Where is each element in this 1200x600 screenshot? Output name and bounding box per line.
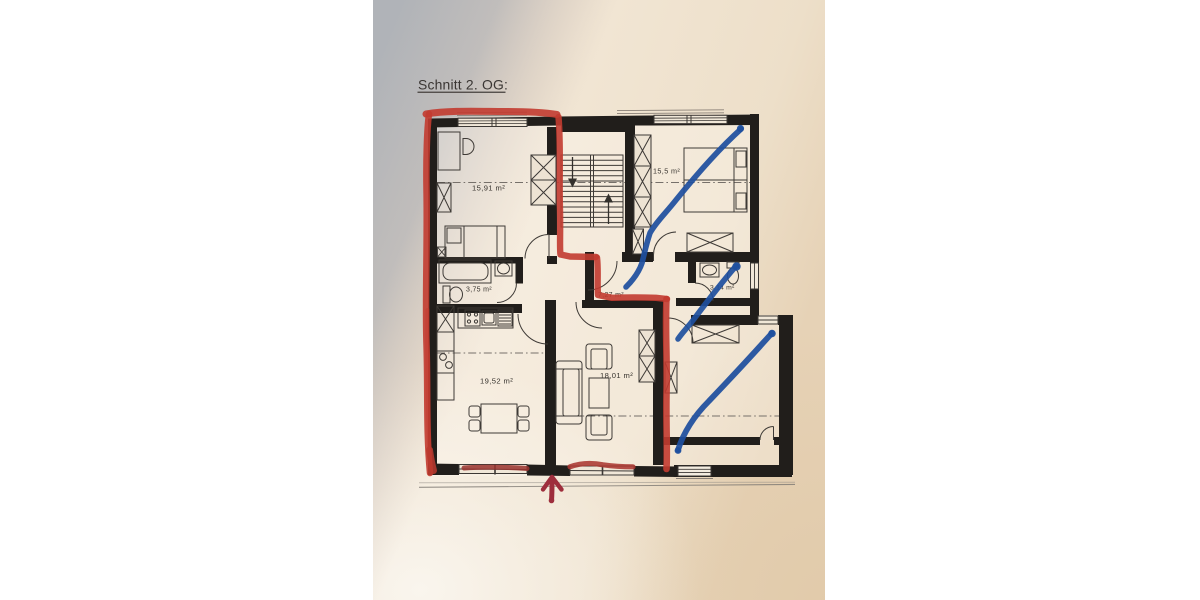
svg-text:3,75 m²: 3,75 m² <box>466 287 492 294</box>
svg-text:Schnitt 2. OG:: Schnitt 2. OG: <box>418 76 508 92</box>
svg-text:18,01 m²: 18,01 m² <box>600 371 633 380</box>
svg-text:15,91 m²: 15,91 m² <box>472 184 505 193</box>
svg-text:19,52 m²: 19,52 m² <box>480 377 513 386</box>
svg-text:15,5 m²: 15,5 m² <box>653 167 680 176</box>
